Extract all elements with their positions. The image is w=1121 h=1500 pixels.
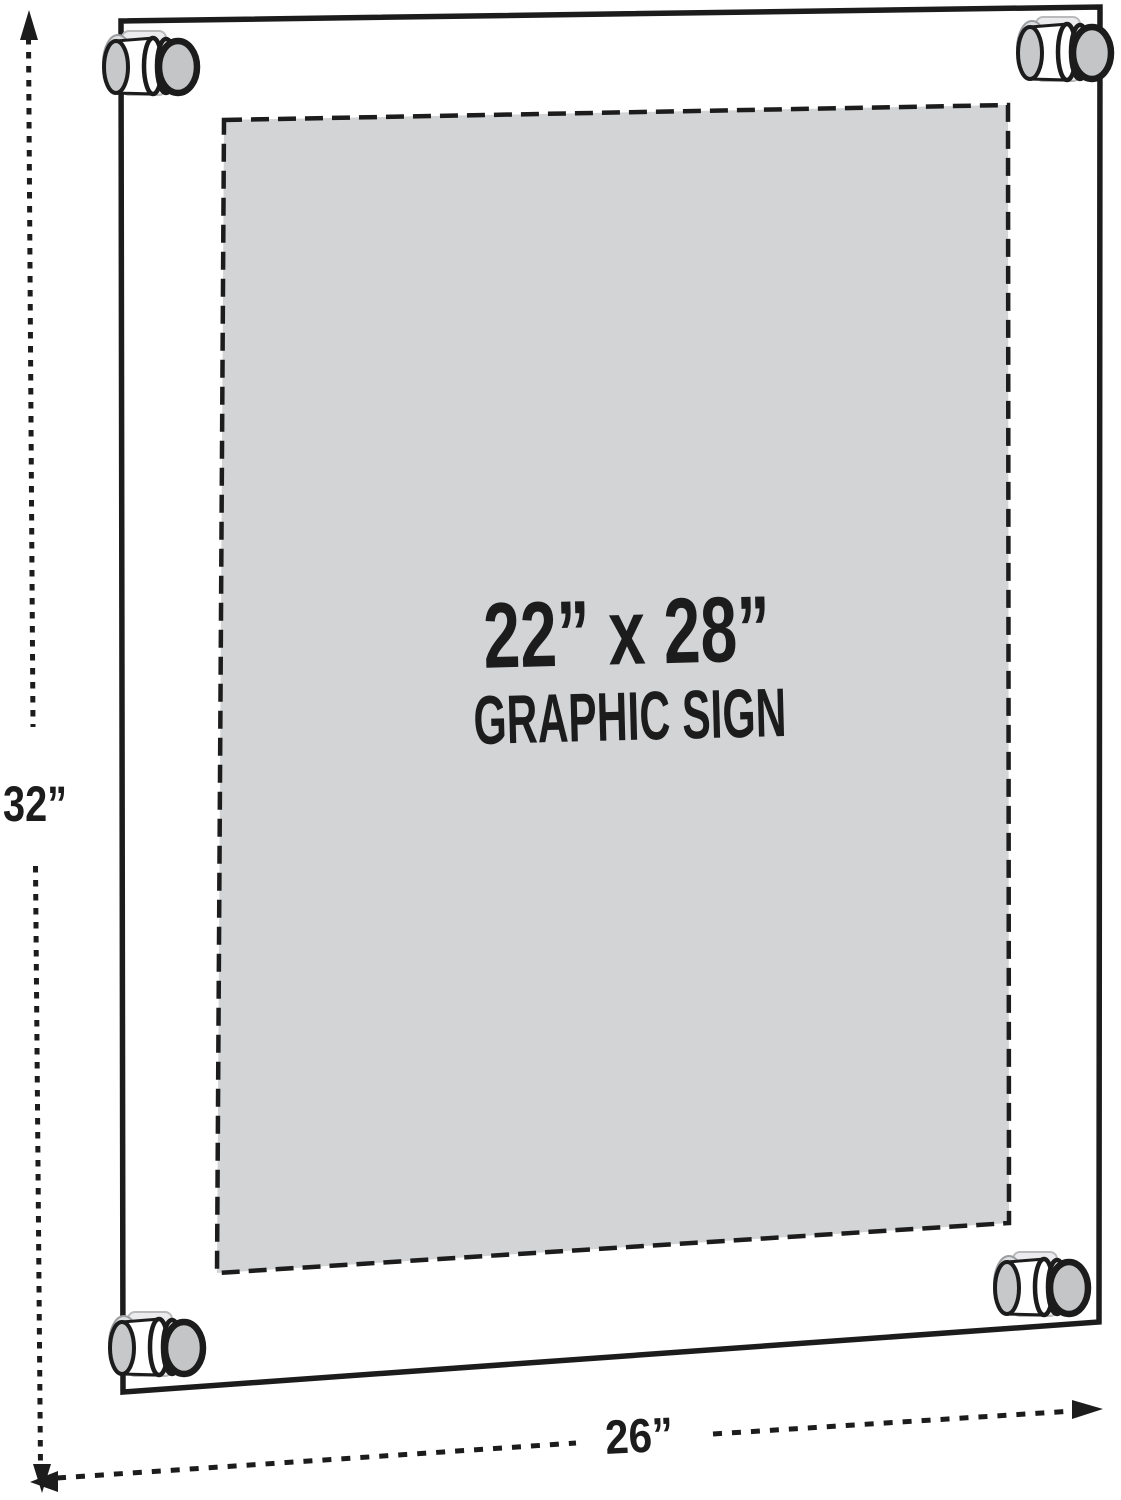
height-dimension-line-upper [29, 38, 34, 727]
height-arrow-up-icon [20, 10, 38, 40]
width-dimension-label: 26” [604, 1408, 675, 1464]
standoff-top-left [103, 31, 197, 95]
sign-label: 22” x 28” GRAPHIC SIGN [470, 576, 787, 759]
standoff-bottom-left [109, 1312, 203, 1376]
width-dimension: 26” [30, 1400, 1103, 1492]
acrylic-sign-holder-diagram: 32” 26” 22” x 28” GRAPHIC SIGN [0, 0, 1121, 1500]
width-dimension-line-left [57, 1443, 576, 1478]
sign-kind-text: GRAPHIC SIGN [472, 674, 787, 759]
product-diagram-figure: 32” 26” 22” x 28” GRAPHIC SIGN [0, 0, 1121, 1500]
height-dimension-line-lower [36, 866, 41, 1466]
standoff-bottom-right [994, 1252, 1088, 1316]
height-dimension-label: 32” [3, 776, 67, 832]
height-dimension: 32” [3, 10, 67, 1493]
sign-size-text: 22” x 28” [482, 576, 772, 687]
width-dimension-line-right [713, 1411, 1073, 1434]
width-arrow-right-icon [1072, 1400, 1103, 1419]
standoff-top-right [1017, 17, 1111, 81]
